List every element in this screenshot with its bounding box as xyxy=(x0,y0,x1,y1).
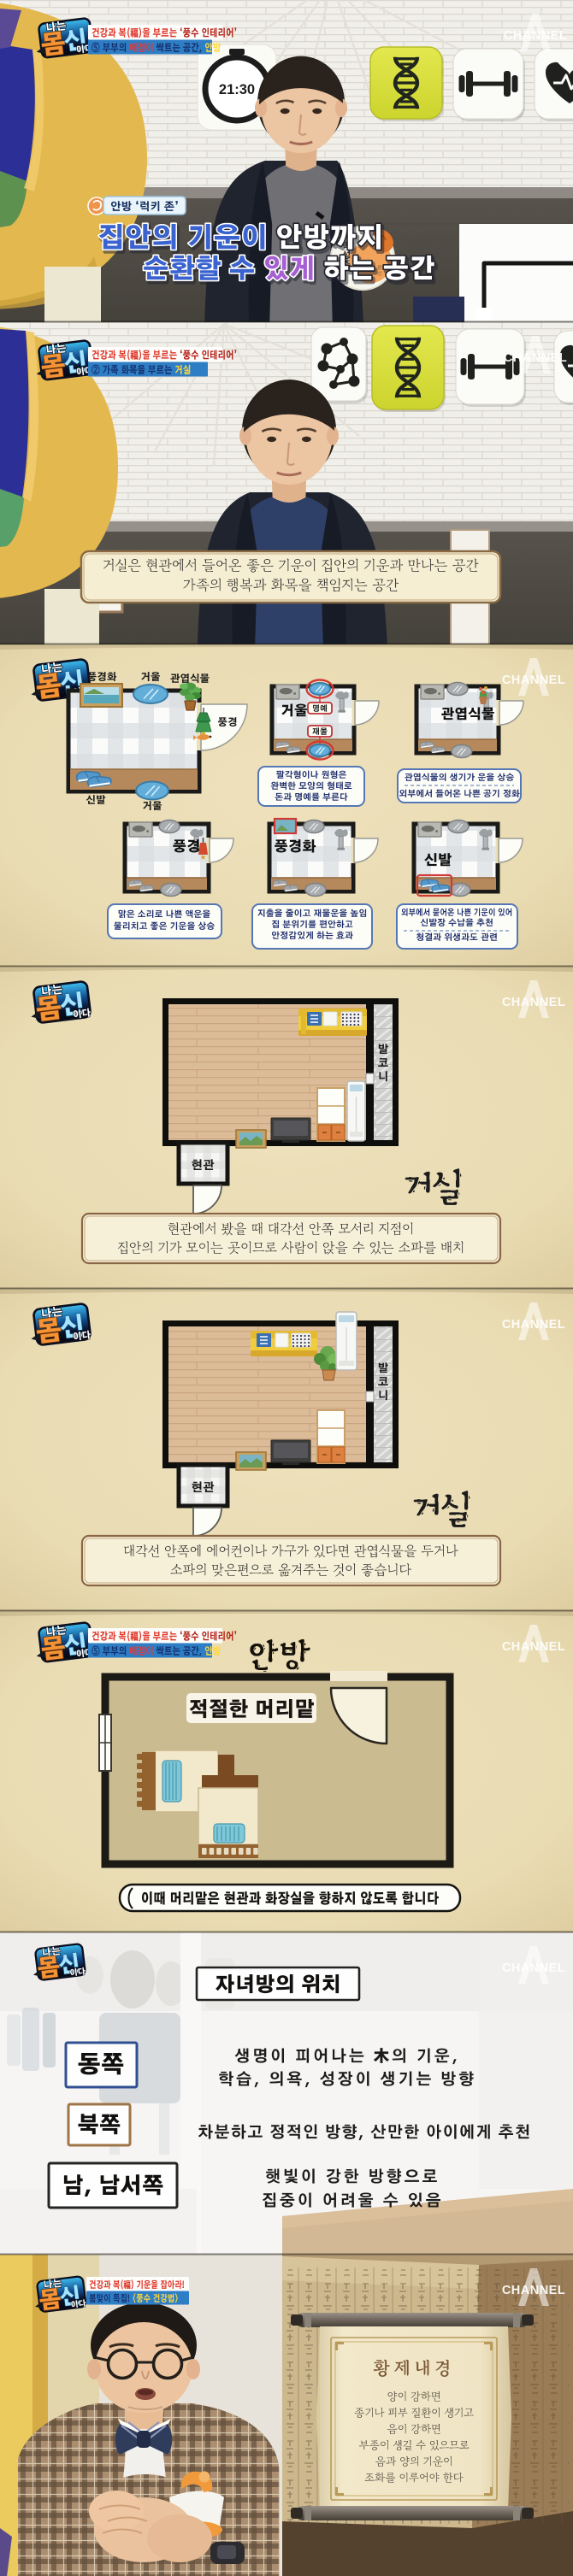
svg-text:21:30: 21:30 xyxy=(219,82,255,97)
svg-text:CHANNEL: CHANNEL xyxy=(502,996,565,1009)
svg-text:CHANNEL: CHANNEL xyxy=(504,351,567,365)
svg-text:CHANNEL: CHANNEL xyxy=(502,673,565,687)
svg-text:CHANNEL: CHANNEL xyxy=(502,1318,565,1332)
svg-text:CHANNEL: CHANNEL xyxy=(504,29,567,43)
svg-text:CHANNEL: CHANNEL xyxy=(502,1640,565,1654)
svg-text:CHANNEL: CHANNEL xyxy=(502,1961,565,1975)
svg-text:CHANNEL: CHANNEL xyxy=(502,2284,565,2297)
